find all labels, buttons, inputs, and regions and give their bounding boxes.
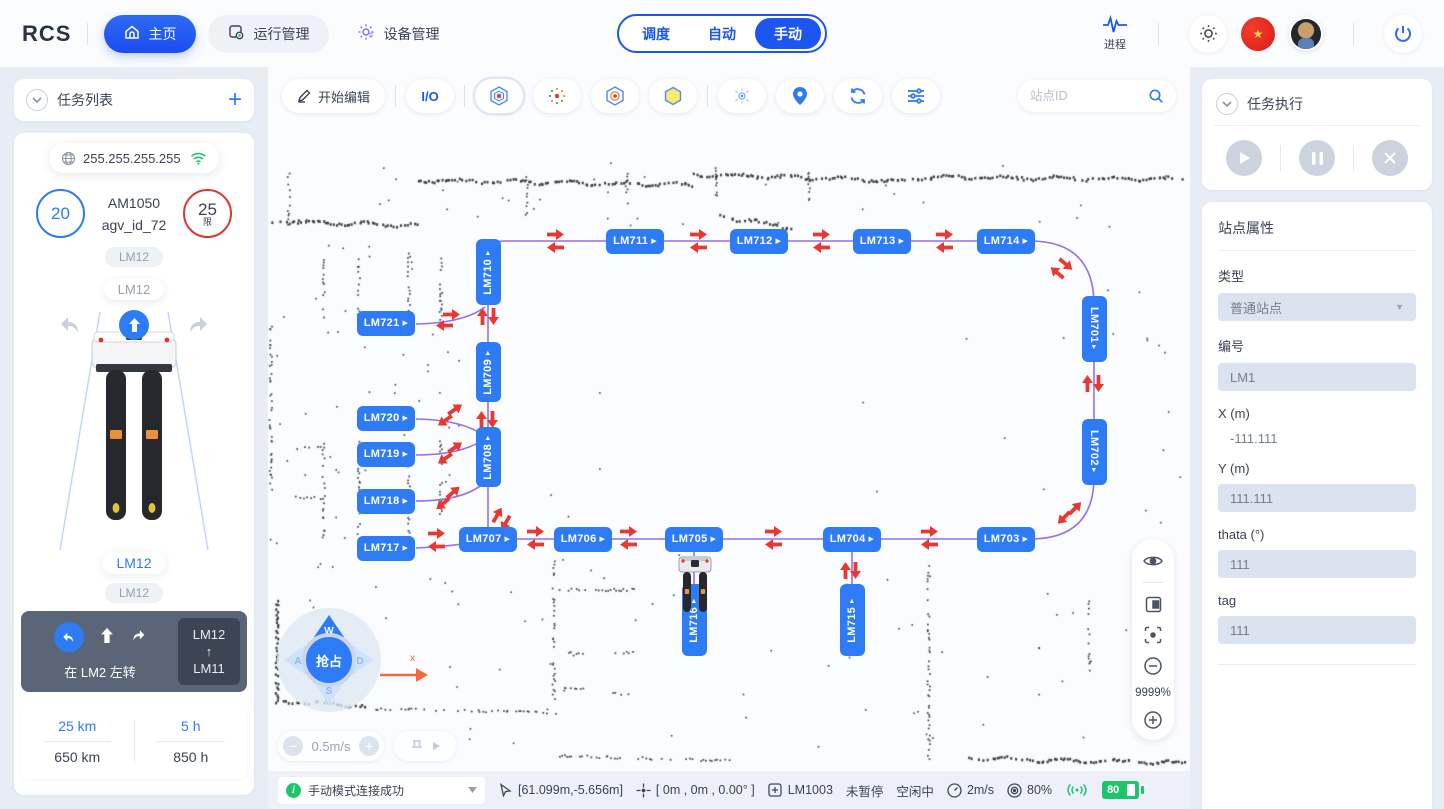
map-station-LM710[interactable]: ▲LM710 [476,239,501,305]
mode-segmented-control: 调度 自动 手动 [617,14,827,53]
direction-arrow-icon [765,540,782,551]
direction-arrow-icon [489,308,500,325]
cursor-position-value: [61.099m,-5.656m] [518,783,623,797]
direction-arrow-icon [839,562,850,579]
center-focus-button[interactable] [1143,625,1163,645]
field-type-label: 类型 [1218,266,1416,285]
nav-operation-label: 运行管理 [253,24,309,44]
field-y-input[interactable]: 111.111 [1218,484,1416,512]
map-station-LM707[interactable]: LM707▶ [459,527,517,552]
task-panel: 任务列表 + 255.255.255.255 20 AM1050 agv_id_… [0,67,268,809]
process-label: 进程 [1104,36,1126,52]
vehicle-model: AM1050 [108,195,160,211]
language-flag-button[interactable]: ★ [1241,17,1275,51]
dropdown-caret-icon [468,787,477,793]
speed-status-value: 2m/s [967,783,994,797]
divider [87,23,88,45]
waveform-icon [1102,15,1128,35]
hexagon-layers-icon [488,85,510,107]
zoom-in-button[interactable] [1143,710,1163,730]
station-tag-3: LM12 [102,552,165,574]
vehicle-ip: 255.255.255.255 [83,151,183,166]
direction-arrow-icon [620,525,637,536]
play-icon [1238,151,1251,165]
speed-limit-sub: 限 [203,218,212,227]
power-button[interactable] [1384,15,1422,53]
play-small-icon [432,741,441,751]
nav-home[interactable]: 主页 [104,15,196,53]
total-hours: 850 h [173,742,208,765]
trip-hours: 5 h [157,718,225,742]
speed-value: 0.5m/s [311,739,350,754]
go-straight-button[interactable] [119,310,149,340]
field-x-value: -111.111 [1218,431,1416,446]
speed-decrease-button[interactable]: − [283,736,303,756]
direction-arrow-icon [1094,375,1105,392]
field-tag-input[interactable]: 111 [1218,616,1416,644]
field-y-value: 111.111 [1230,491,1273,506]
sliders-icon [906,87,926,105]
mode-dispatch[interactable]: 调度 [623,18,689,49]
navigation-hint-card: 在 LM2 左转 LM12 ↑ LM11 [21,611,247,692]
nav-straight-icon[interactable] [100,628,114,646]
agv-illustration [92,330,176,520]
direction-arrow-icon [475,411,486,428]
direction-arrow-icon [851,562,862,579]
station-search-input[interactable] [1030,89,1140,103]
map-station-LM719[interactable]: LM719▶ [357,442,415,467]
robot-pose-value: [ 0m , 0m , 0.00° ] [656,783,755,797]
collapse-chevron-icon[interactable] [26,89,48,111]
current-station: LM1003 [768,783,833,798]
signal-icon [1065,783,1089,798]
direction-arrow-icon [428,527,445,538]
direction-arrow-icon [428,542,445,553]
agv-robot-marker[interactable] [678,556,712,617]
pencil-icon [297,89,311,103]
layer-station-tool[interactable] [475,79,523,113]
vehicle-agv-id: agv_id_72 [102,217,167,233]
field-type-select[interactable]: 普通站点 ▼ [1218,293,1416,321]
map-station-LM714[interactable]: LM714▶ [977,229,1035,254]
speed-limit-badge: 25 限 [183,189,232,238]
target-icon [1007,783,1022,798]
direction-arrow-icon [936,243,953,254]
radar-icon [731,85,753,107]
divider [1353,23,1354,45]
refresh-button[interactable] [834,79,882,113]
vehicle-ip-field[interactable]: 255.255.255.255 [49,143,219,173]
map-station-LM702[interactable]: LM702▼ [1082,419,1107,485]
direction-arrow-icon [527,540,544,551]
connection-status-dropdown[interactable]: i 手动模式连接成功 [278,777,485,804]
map-station-LM720[interactable]: LM720▶ [357,406,415,431]
direction-arrow-icon [690,243,707,254]
exec-collapse-chevron-icon[interactable] [1216,93,1238,115]
fork-icon [410,739,424,753]
manual-joystick: W A S D 抢占 [277,608,381,712]
scatter-points-tool[interactable] [533,79,581,113]
direction-arrow-icon [813,243,830,254]
speed-status: 2m/s [947,783,994,798]
confidence-value: 80% [1027,783,1052,797]
select-caret-icon: ▼ [1395,302,1404,312]
gauge-icon [947,783,962,798]
scatter-dots-icon [546,85,568,107]
map-axis: x [378,653,430,686]
direction-arrow-icon [547,228,564,239]
io-button[interactable]: I/O [406,79,454,113]
idle-state: 空闲中 [896,781,934,800]
yellow-hexagon-icon [662,85,684,107]
wifi-icon [190,152,207,165]
divider [1218,664,1416,665]
nav-route-box: LM12 ↑ LM11 [178,618,240,685]
nav-to: LM11 [193,661,225,676]
process-button[interactable]: 进程 [1102,15,1128,52]
nav-operation[interactable]: 运行管理 [208,15,329,53]
map-station-LM721[interactable]: LM721▶ [357,311,415,336]
connection-message: 手动模式连接成功 [308,782,461,799]
total-distance: 650 km [54,742,100,765]
add-square-icon [768,783,783,798]
field-tag-label: tag [1218,593,1416,608]
map-station-LM704[interactable]: LM704▶ [823,527,881,552]
right-panel: 任务执行 站点属性 类型 普通站点 ▼ 编号 LM1 X (m) -111.11… [1190,67,1444,809]
task-list-title: 任务列表 [57,90,113,110]
zoom-out-button[interactable] [1143,656,1163,676]
nav-turn-left-icon[interactable] [54,622,84,652]
direction-arrow-icon [921,540,938,551]
robot-pose: [ 0m , 0m , 0.00° ] [636,783,755,798]
speed-limit-value: 25 [198,201,217,218]
hexagon-target-icon [604,85,626,107]
direction-arrow-icon [921,525,938,536]
map-column: LM711▶LM712▶LM713▶LM714▶LM721▶LM720▶LM71… [268,67,1190,809]
mode-manual[interactable]: 手动 [755,18,821,49]
direction-arrow-icon [813,228,830,239]
trip-distance: 25 km [43,718,111,742]
filter-settings-button[interactable] [892,79,940,113]
direction-arrow-icon [527,525,544,536]
io-label: I/O [421,89,438,104]
vehicle-gauges: 20 AM1050 agv_id_72 25 限 [14,189,254,238]
speed-control: − 0.5m/s + [278,731,384,761]
search-icon[interactable] [1148,88,1164,104]
sun-icon [1199,24,1218,43]
field-code-value: LM1 [1230,370,1255,385]
field-y-label: Y (m) [1218,461,1416,476]
map-station-LM715[interactable]: ▲LM715 [840,584,865,656]
nav-turn-right-icon[interactable] [130,627,147,647]
field-code-label: 编号 [1218,336,1416,355]
power-icon [1393,24,1413,44]
direction-arrow-icon [690,228,707,239]
station-tag-4: LM12 [105,583,163,603]
nav-hint-text: 在 LM2 左转 [28,662,172,681]
vehicle-visual [14,302,254,552]
station-props-title: 站点属性 [1218,218,1416,251]
speed-increase-button[interactable]: + [359,736,379,756]
task-pause-button[interactable] [1299,140,1335,176]
map-station-LM708[interactable]: ▲LM708 [476,427,501,487]
task-exec-title: 任务执行 [1247,94,1303,114]
task-cancel-button[interactable] [1372,140,1408,176]
mode-auto[interactable]: 自动 [689,18,755,49]
current-station-value: LM1003 [788,783,833,797]
route-path [488,241,1094,539]
hexagon-zone-tool[interactable] [649,79,697,113]
map-station-LM701[interactable]: LM701▼ [1082,296,1107,362]
station-search [1018,80,1176,112]
refresh-icon [848,86,868,106]
task-exec-card: 任务执行 [1202,79,1432,190]
lidar-tool[interactable] [718,79,766,113]
direction-arrow-icon [547,243,564,254]
map-station-LM703[interactable]: LM703▶ [977,527,1035,552]
topbar: RCS 主页 运行管理 设备管理 调度 自动 手动 进程 ★ [0,0,1444,67]
field-type-value: 普通站点 [1230,298,1282,317]
direction-arrow-icon [443,308,460,319]
field-code-input[interactable]: LM1 [1218,363,1416,391]
zoom-level: 9999% [1135,687,1171,699]
direction-arrow-icon [488,411,499,428]
station-props-card: 站点属性 类型 普通站点 ▼ 编号 LM1 X (m) -111.111 Y (… [1202,202,1432,809]
task-list-header: 任务列表 + [14,79,254,121]
direction-arrow-icon [1081,375,1092,392]
star-icon: ★ [1253,27,1264,41]
globe-icon [61,151,76,166]
minimap-button[interactable] [1143,594,1163,614]
crosshair-icon [636,783,651,798]
svg-text:A: A [294,656,301,667]
pause-icon [1312,152,1323,165]
map-view-toolbar: 9999% [1132,539,1174,740]
confidence-status: 80% [1007,783,1052,798]
field-theta-input[interactable]: 111 [1218,550,1416,578]
map-station-LM717[interactable]: LM717▶ [357,536,415,561]
turn-right-icon[interactable] [185,312,211,338]
svg-text:D: D [356,656,363,667]
visibility-button[interactable] [1143,551,1163,571]
battery-indicator: 80 [1102,781,1139,799]
hexagon-target-tool[interactable] [591,79,639,113]
axis-x-label: x [410,653,415,664]
map-station-LM706[interactable]: LM706▶ [554,527,612,552]
field-tag-value: 111 [1230,623,1250,638]
cursor-position: [61.099m,-5.656m] [498,783,623,798]
add-task-button[interactable]: + [228,88,242,112]
field-theta-label: thata (°) [1218,527,1416,542]
app-logo: RCS [22,21,71,47]
fork-control[interactable] [394,731,456,761]
station-tag-2: LM12 [104,279,165,300]
direction-arrow-icon [620,540,637,551]
locate-tool[interactable] [776,79,824,113]
divider [1158,23,1159,45]
close-icon [1384,152,1396,164]
pause-state: 未暂停 [846,781,884,800]
statusbar: i 手动模式连接成功 [61.099m,-5.656m] [ 0m , 0m ,… [268,771,1190,809]
location-pin-icon [791,86,809,106]
map-toolbar: 开始编辑 I/O [282,79,1176,113]
user-avatar[interactable] [1289,17,1323,51]
start-edit-label: 开始编辑 [318,87,370,106]
map-station-LM709[interactable]: ▲LM709 [476,342,501,402]
turn-left-icon[interactable] [57,312,83,338]
svg-text:S: S [326,686,333,697]
field-x-label: X (m) [1218,406,1416,421]
direction-arrow-icon [476,308,487,325]
direction-arrow-icon [936,228,953,239]
vehicle-stats-card: 25 km 650 km 5 h 850 h [21,704,247,779]
cursor-icon [498,783,513,798]
map-station-LM705[interactable]: LM705▶ [665,527,723,552]
nav-home-label: 主页 [148,24,176,44]
nav-device[interactable]: 设备管理 [337,15,459,53]
map-station-LM713[interactable]: LM713▶ [853,229,911,254]
battery-gauge: 20 [36,189,85,238]
gear-icon [357,23,375,44]
direction-arrow-icon [765,525,782,536]
map-station-LM712[interactable]: LM712▶ [730,229,788,254]
start-edit-button[interactable]: 开始编辑 [282,79,385,113]
field-theta-value: 111 [1230,557,1250,572]
map-canvas[interactable]: LM711▶LM712▶LM713▶LM714▶LM721▶LM720▶LM71… [268,67,1190,771]
nav-device-label: 设备管理 [383,24,439,44]
info-icon: i [286,783,301,798]
direction-arrow-icon [436,321,453,332]
map-station-LM718[interactable]: LM718▶ [357,489,415,514]
nav-from: LM12 [193,627,226,642]
theme-toggle-button[interactable] [1189,15,1227,53]
map-station-LM711[interactable]: LM711▶ [606,229,664,254]
seize-control-button[interactable]: 抢占 [302,633,356,687]
task-play-button[interactable] [1226,140,1262,176]
up-arrow-icon: ↑ [206,644,213,659]
home-icon [124,24,140,43]
monitor-gear-icon [228,24,245,44]
vehicle-card: 255.255.255.255 20 AM1050 agv_id_72 25 限… [14,133,254,795]
station-tag-1: LM12 [105,247,163,267]
